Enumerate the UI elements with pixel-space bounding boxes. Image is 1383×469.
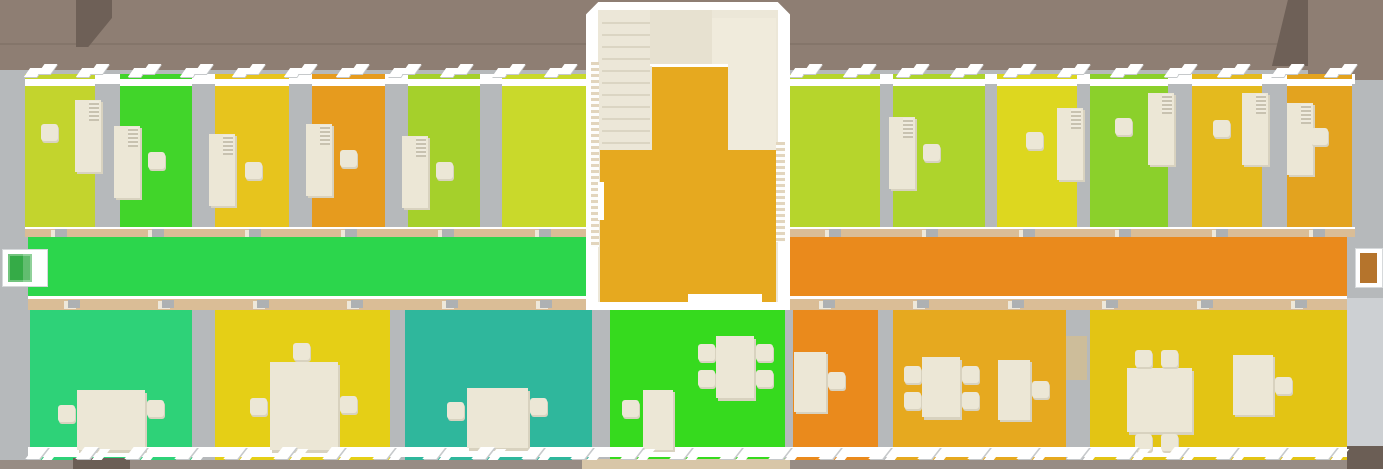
door-panel — [1201, 300, 1213, 308]
south-room-4[interactable] — [610, 310, 785, 460]
door-panel — [1012, 300, 1024, 308]
office-chair — [1311, 128, 1328, 145]
chair — [962, 366, 979, 383]
ground-shadow-west — [73, 458, 130, 469]
door-panel — [539, 229, 551, 237]
desk — [114, 126, 140, 198]
door-panel — [442, 229, 454, 237]
door-panel — [1106, 300, 1118, 308]
door-panel — [446, 300, 458, 308]
stairwell-wall-texture — [776, 142, 785, 242]
table — [922, 357, 960, 417]
office-chair — [148, 152, 165, 169]
office-chair — [41, 124, 58, 141]
door-panel — [351, 300, 363, 308]
north-office-12[interactable] — [1287, 74, 1352, 227]
north-office-5[interactable] — [408, 74, 480, 227]
door-panel — [917, 300, 929, 308]
desk — [889, 117, 915, 189]
stair-upper-flight — [650, 10, 712, 66]
chair — [1135, 350, 1152, 367]
table — [467, 388, 528, 448]
desk — [794, 352, 826, 412]
chair — [1161, 434, 1178, 451]
door-panel — [540, 300, 552, 308]
chair — [530, 398, 547, 415]
desk — [209, 134, 235, 206]
corridor-east[interactable] — [790, 237, 1347, 298]
desk — [1148, 93, 1174, 165]
chair — [698, 370, 715, 387]
office-chair — [340, 150, 357, 167]
stairwell-corridor-doorframe — [688, 294, 762, 302]
desk — [1057, 108, 1083, 180]
door-panel — [1295, 300, 1307, 308]
desk — [1242, 93, 1268, 165]
ground-shadow-east — [1347, 446, 1383, 469]
table — [77, 390, 145, 450]
chair — [756, 370, 773, 387]
office-chair — [245, 162, 262, 179]
chair — [904, 366, 921, 383]
west-entrance-door[interactable] — [3, 250, 47, 286]
north-office-9[interactable] — [997, 74, 1077, 227]
office-chair — [1213, 120, 1230, 137]
door-panel — [926, 229, 938, 237]
north-office-10[interactable] — [1090, 74, 1168, 227]
office-chair — [923, 144, 940, 161]
desk — [643, 390, 673, 450]
door-panel — [1023, 229, 1035, 237]
storage-door — [1066, 336, 1087, 380]
north-office-7[interactable] — [790, 74, 880, 227]
chair — [756, 344, 773, 361]
office-chair — [436, 162, 453, 179]
north-office-8[interactable] — [893, 74, 985, 227]
chair — [1135, 434, 1152, 451]
chair — [250, 398, 267, 415]
door-panel — [1216, 229, 1228, 237]
meeting-table — [716, 336, 754, 398]
stairwell-floor — [652, 64, 728, 152]
south-room-6[interactable] — [893, 310, 1066, 460]
south-room-2[interactable] — [215, 310, 390, 460]
south-room-1[interactable] — [30, 310, 192, 460]
desk — [998, 360, 1030, 420]
east-wall-lower — [1347, 298, 1383, 448]
chair — [147, 400, 164, 417]
south-room-7[interactable] — [1090, 310, 1347, 460]
stair-flight — [602, 12, 650, 150]
door-panel — [162, 300, 174, 308]
west-entrance-door-panel — [8, 254, 32, 282]
door-panel — [1119, 229, 1131, 237]
door-panel — [257, 300, 269, 308]
chair — [904, 392, 921, 409]
meeting-table — [1127, 368, 1192, 432]
north-office-2[interactable] — [120, 74, 192, 227]
door-panel — [55, 229, 67, 237]
south-room-3[interactable] — [405, 310, 592, 460]
door-panel — [823, 300, 835, 308]
chair — [698, 344, 715, 361]
chair — [962, 392, 979, 409]
building-3d-floorplan — [0, 0, 1383, 469]
stairwell[interactable] — [586, 2, 790, 310]
east-exit-door-panel — [1360, 253, 1377, 283]
chair — [622, 400, 639, 417]
roof-east-wing — [1308, 0, 1383, 80]
east-exit-door[interactable] — [1356, 249, 1382, 287]
chair — [293, 343, 310, 360]
north-office-1[interactable] — [25, 74, 95, 227]
stairwell-floor-lower — [600, 150, 776, 302]
door-panel — [249, 229, 261, 237]
chair — [58, 405, 75, 422]
ground-path — [582, 459, 790, 469]
door-panel — [68, 300, 80, 308]
north-office-4[interactable] — [312, 74, 385, 227]
chair — [828, 372, 845, 389]
north-office-6[interactable] — [502, 74, 586, 227]
door-panel — [1313, 229, 1325, 237]
north-office-11[interactable] — [1192, 74, 1262, 227]
north-office-3[interactable] — [215, 74, 289, 227]
desk — [1287, 103, 1313, 175]
chair — [340, 396, 357, 413]
corridor-west[interactable] — [28, 237, 586, 298]
table — [270, 362, 338, 450]
desk — [402, 136, 428, 208]
chair — [1161, 350, 1178, 367]
desk — [1233, 355, 1273, 415]
chair — [447, 402, 464, 419]
office-chair — [1115, 118, 1132, 135]
stairwell-side-door — [598, 182, 604, 220]
door-panel — [152, 229, 164, 237]
chair — [1275, 377, 1292, 394]
office-chair — [1026, 132, 1043, 149]
desk — [75, 100, 101, 172]
door-panel — [829, 229, 841, 237]
chair — [1032, 381, 1049, 398]
door-panel — [345, 229, 357, 237]
desk — [306, 124, 332, 196]
south-room-5[interactable] — [793, 310, 878, 460]
